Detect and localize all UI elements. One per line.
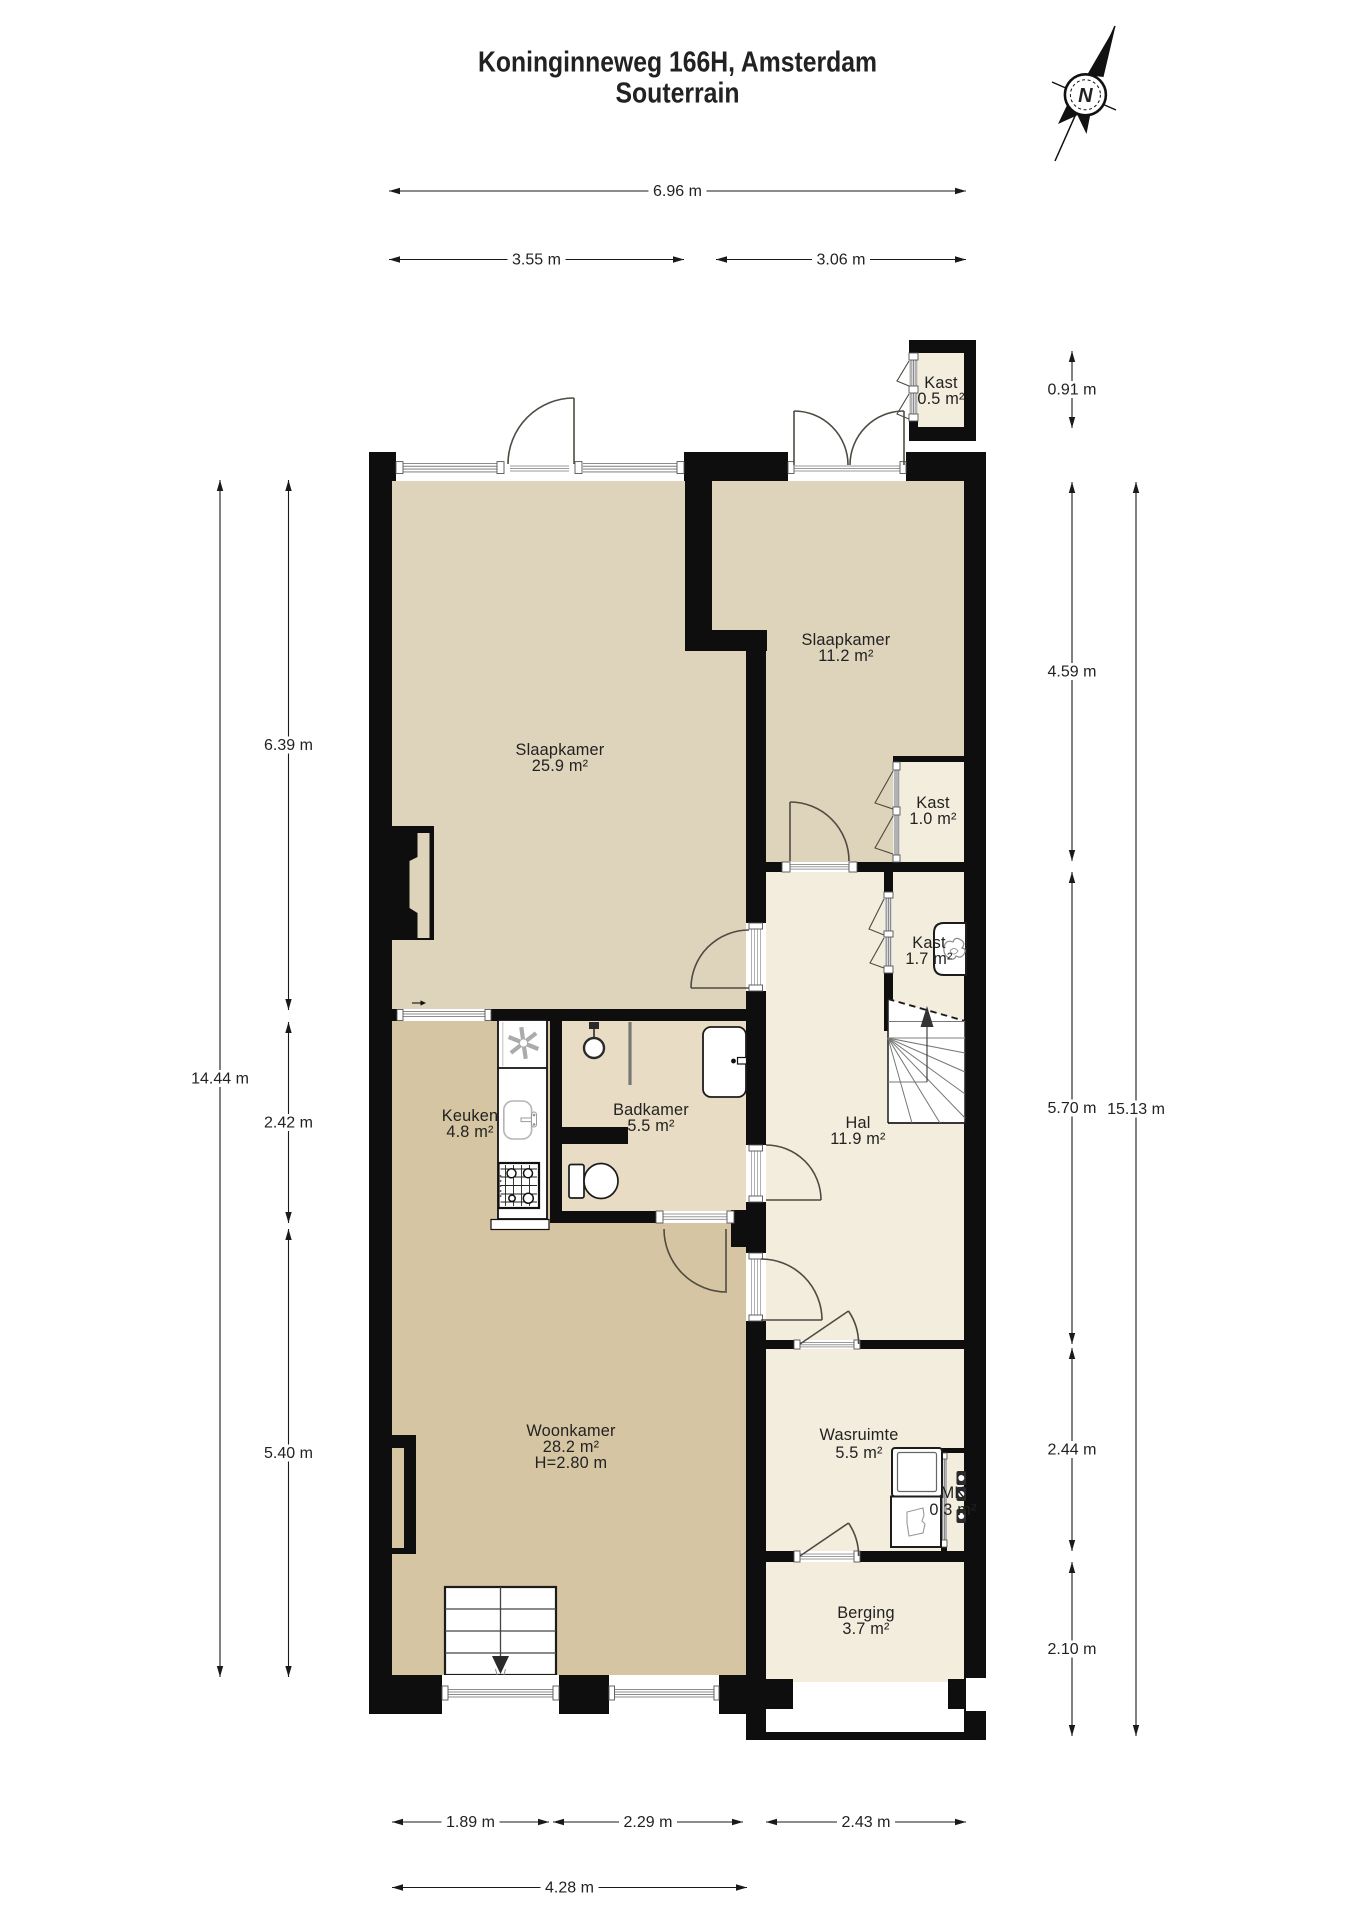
svg-text:5.70 m: 5.70 m bbox=[1048, 1100, 1097, 1117]
svg-text:1.7 m²: 1.7 m² bbox=[905, 950, 953, 968]
svg-text:6.96 m: 6.96 m bbox=[653, 183, 702, 200]
svg-text:2.29 m: 2.29 m bbox=[624, 1814, 673, 1831]
svg-text:2.43 m: 2.43 m bbox=[842, 1814, 891, 1831]
svg-text:MK: MK bbox=[941, 1484, 966, 1502]
svg-text:4.28 m: 4.28 m bbox=[545, 1880, 594, 1897]
svg-text:Wasruimte: Wasruimte bbox=[820, 1426, 899, 1444]
svg-text:3.7 m²: 3.7 m² bbox=[842, 1620, 890, 1638]
svg-text:14.44 m: 14.44 m bbox=[191, 1071, 249, 1088]
svg-text:3.55 m: 3.55 m bbox=[512, 252, 561, 269]
svg-text:2.10 m: 2.10 m bbox=[1048, 1641, 1097, 1658]
svg-text:H=2.80 m: H=2.80 m bbox=[535, 1454, 608, 1472]
svg-text:1.0 m²: 1.0 m² bbox=[909, 810, 957, 828]
svg-text:N: N bbox=[1078, 85, 1093, 107]
svg-text:25.9 m²: 25.9 m² bbox=[532, 757, 589, 775]
svg-text:4.59 m: 4.59 m bbox=[1048, 664, 1097, 681]
svg-text:4.8 m²: 4.8 m² bbox=[446, 1123, 494, 1141]
svg-text:11.2 m²: 11.2 m² bbox=[818, 647, 874, 665]
svg-text:5.40 m: 5.40 m bbox=[264, 1445, 313, 1462]
svg-text:15.13 m: 15.13 m bbox=[1107, 1101, 1165, 1118]
svg-text:Koninginneweg 166H, Amsterdam: Koninginneweg 166H, Amsterdam bbox=[478, 47, 877, 79]
svg-text:0.91 m: 0.91 m bbox=[1048, 382, 1097, 399]
svg-text:Souterrain: Souterrain bbox=[616, 78, 740, 110]
svg-text:6.39 m: 6.39 m bbox=[264, 737, 313, 754]
svg-text:0.5 m²: 0.5 m² bbox=[917, 390, 965, 408]
svg-text:2.44 m: 2.44 m bbox=[1048, 1442, 1097, 1459]
svg-text:3.06 m: 3.06 m bbox=[817, 252, 866, 269]
svg-text:1.89 m: 1.89 m bbox=[446, 1814, 495, 1831]
svg-text:0.3 m²: 0.3 m² bbox=[929, 1501, 977, 1519]
svg-text:5.5 m²: 5.5 m² bbox=[627, 1117, 675, 1135]
svg-text:2.42 m: 2.42 m bbox=[264, 1115, 313, 1132]
svg-text:11.9 m²: 11.9 m² bbox=[830, 1130, 886, 1148]
svg-text:5.5 m²: 5.5 m² bbox=[835, 1444, 883, 1462]
